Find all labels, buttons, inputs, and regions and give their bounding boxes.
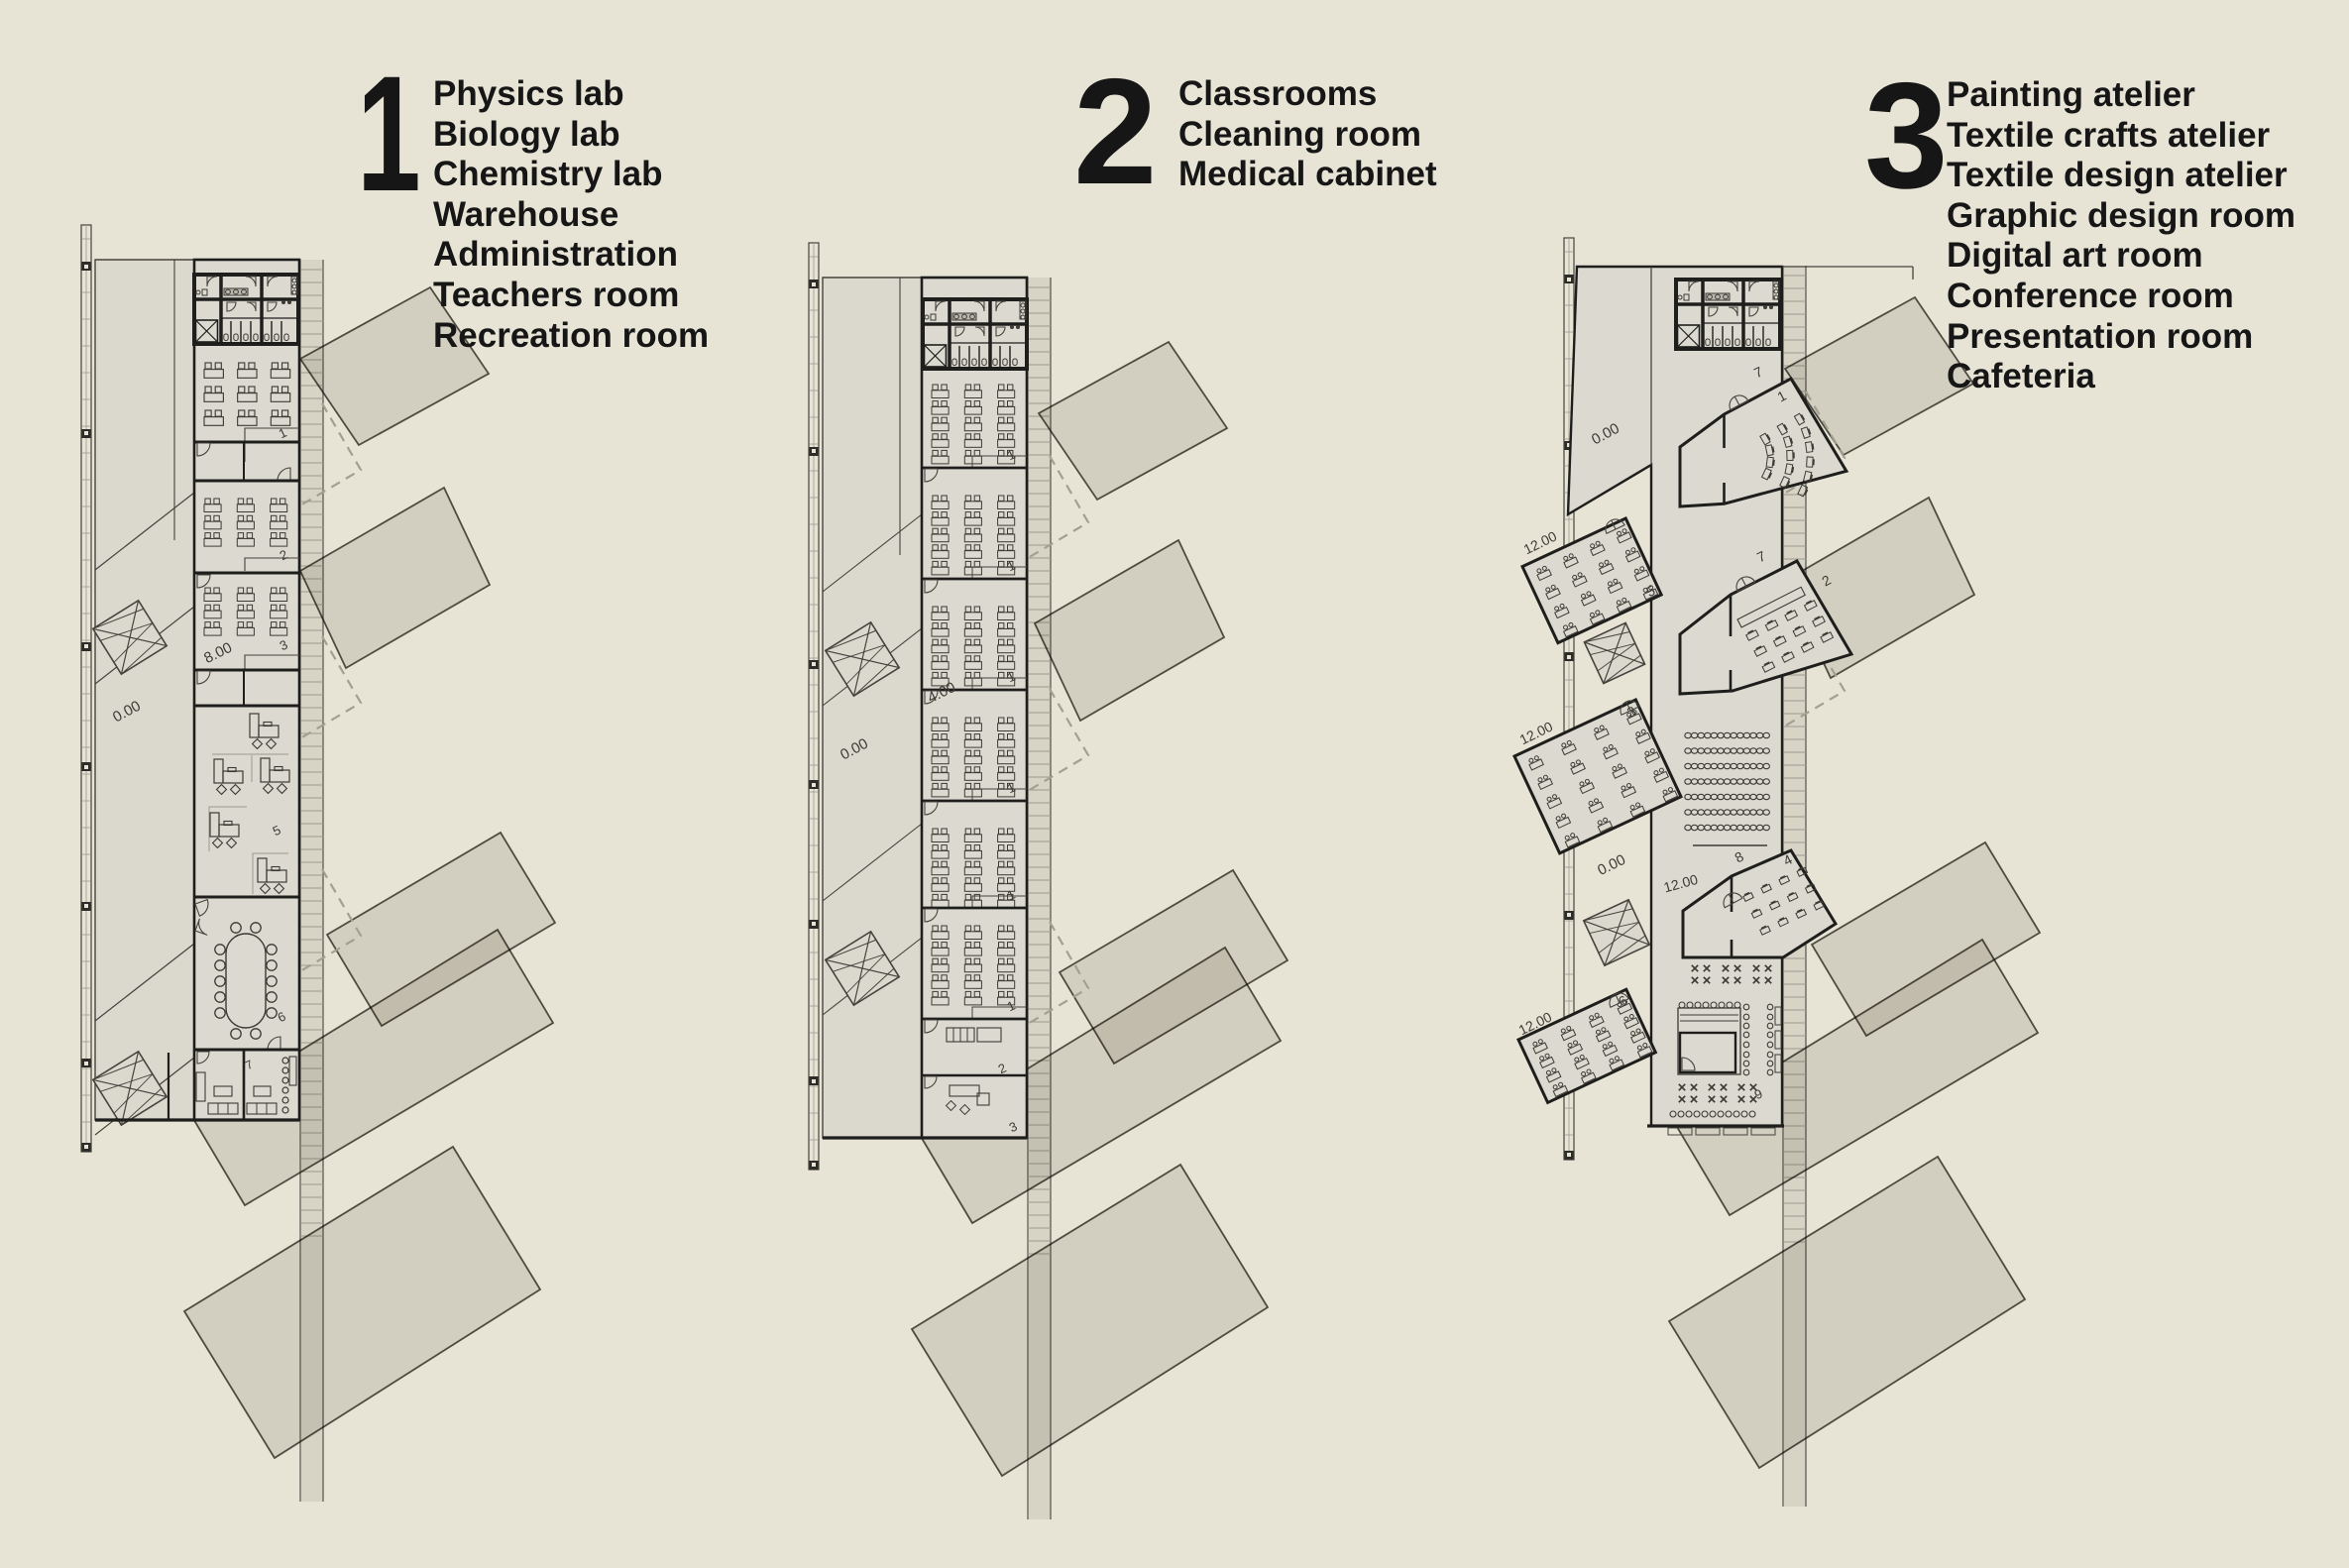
svg-text:0.00: 0.00 (1595, 851, 1628, 879)
